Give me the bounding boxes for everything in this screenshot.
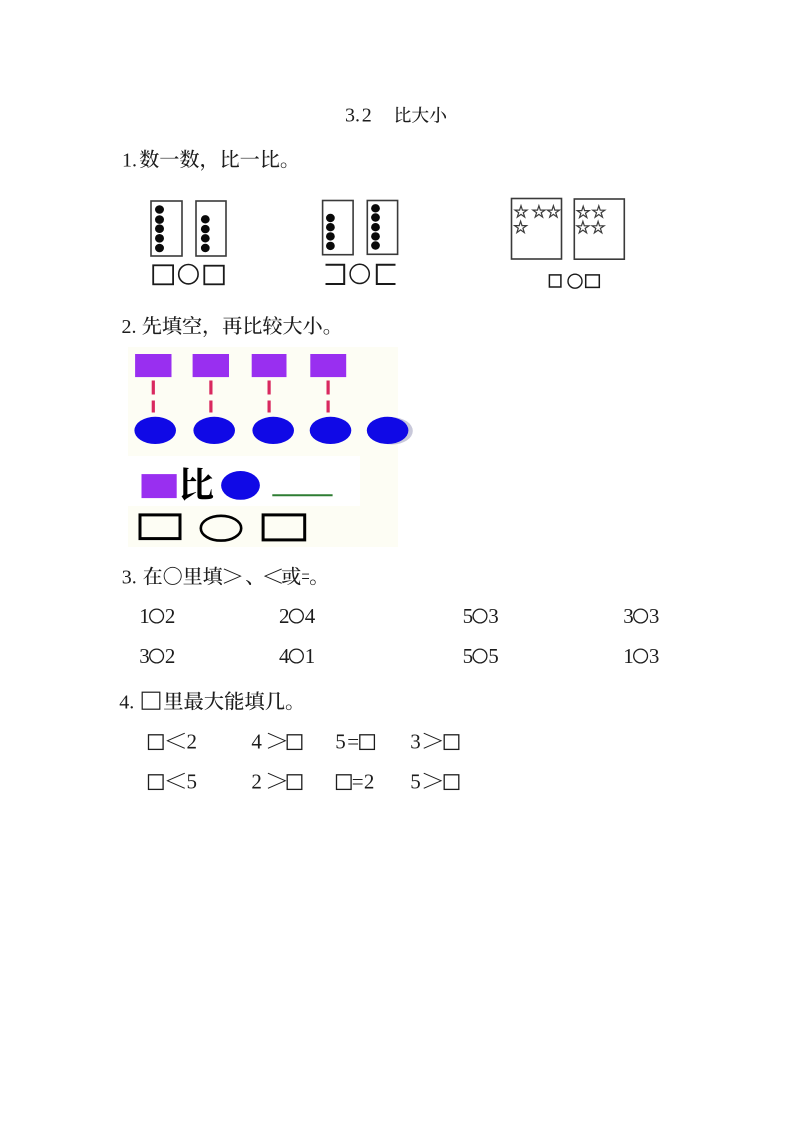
svg-text:5: 5 — [187, 770, 198, 794]
svg-text:1: 1 — [305, 644, 316, 668]
svg-text:=: = — [352, 770, 364, 794]
svg-text:2: 2 — [165, 604, 176, 628]
svg-text:3: 3 — [410, 730, 421, 754]
svg-text:2: 2 — [362, 105, 372, 127]
svg-text:3: 3 — [649, 644, 660, 668]
svg-text:2: 2 — [364, 770, 375, 794]
svg-text:5: 5 — [335, 730, 346, 754]
svg-text:1: 1 — [623, 644, 634, 668]
svg-text:5: 5 — [463, 604, 474, 628]
svg-text:3.: 3. — [345, 105, 360, 127]
svg-text:5: 5 — [410, 770, 421, 794]
svg-text:=: = — [347, 730, 359, 754]
svg-text:4.: 4. — [119, 692, 134, 714]
svg-text:1: 1 — [139, 604, 150, 628]
svg-text:4: 4 — [305, 604, 316, 628]
svg-text:4: 4 — [279, 644, 290, 668]
svg-text:1.: 1. — [122, 150, 137, 172]
svg-text:2: 2 — [279, 604, 290, 628]
svg-text:2: 2 — [165, 644, 176, 668]
svg-text:2: 2 — [187, 730, 198, 754]
svg-text:2.: 2. — [122, 316, 137, 338]
svg-text:2: 2 — [251, 770, 262, 794]
svg-text:3: 3 — [649, 604, 660, 628]
svg-text:3: 3 — [623, 604, 634, 628]
svg-text:4: 4 — [251, 730, 262, 754]
svg-text:5: 5 — [463, 644, 474, 668]
svg-text:3.: 3. — [122, 567, 137, 589]
svg-text:5: 5 — [488, 644, 499, 668]
svg-text:3: 3 — [488, 604, 499, 628]
svg-text:3: 3 — [139, 644, 150, 668]
